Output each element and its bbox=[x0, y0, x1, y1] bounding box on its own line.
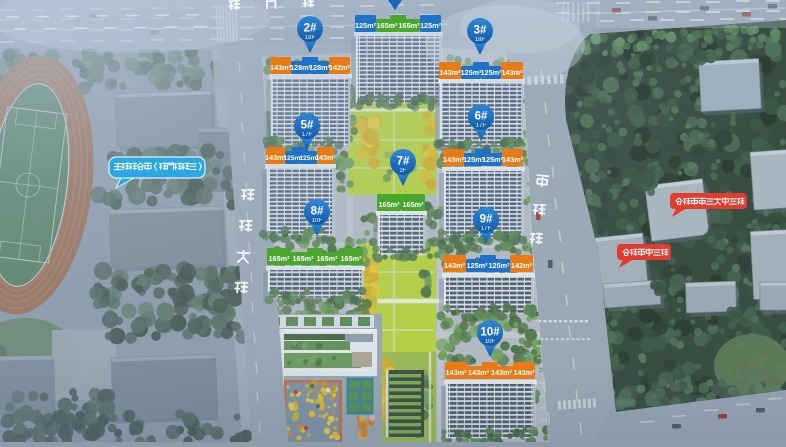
svg-text:143m²: 143m² bbox=[501, 68, 523, 77]
svg-text:128m²: 128m² bbox=[309, 63, 331, 72]
svg-text:10F: 10F bbox=[485, 339, 496, 345]
svg-text:3#: 3# bbox=[474, 25, 487, 37]
svg-text:142m²: 142m² bbox=[329, 63, 351, 72]
svg-text:18F: 18F bbox=[305, 35, 316, 41]
svg-text:6#: 6# bbox=[475, 111, 488, 123]
svg-text:165m²: 165m² bbox=[378, 200, 400, 209]
svg-text:2F: 2F bbox=[399, 168, 406, 174]
svg-text:165m²: 165m² bbox=[292, 254, 314, 263]
svg-text:143m²: 143m² bbox=[468, 368, 490, 377]
svg-text:2#: 2# bbox=[304, 23, 317, 35]
svg-text:143m²: 143m² bbox=[444, 261, 466, 270]
svg-text:143m²: 143m² bbox=[445, 368, 467, 377]
svg-text:7#: 7# bbox=[397, 156, 410, 168]
svg-text:5#: 5# bbox=[301, 120, 314, 132]
svg-text:10F: 10F bbox=[312, 218, 323, 224]
svg-text:125m²: 125m² bbox=[355, 21, 377, 30]
svg-text:125m²: 125m² bbox=[460, 68, 482, 77]
svg-text:143m²: 143m² bbox=[491, 368, 513, 377]
svg-text:143m²: 143m² bbox=[513, 368, 535, 377]
svg-text:143m²: 143m² bbox=[270, 63, 292, 72]
svg-text:143m²: 143m² bbox=[439, 68, 461, 77]
svg-text:165m²: 165m² bbox=[340, 254, 362, 263]
svg-text:125m²: 125m² bbox=[480, 68, 502, 77]
svg-text:9#: 9# bbox=[480, 214, 493, 226]
svg-text:17F: 17F bbox=[476, 123, 487, 129]
svg-text:165m²: 165m² bbox=[402, 200, 424, 209]
svg-text:8#: 8# bbox=[311, 206, 324, 218]
svg-text:17F: 17F bbox=[481, 226, 492, 232]
svg-text:125m²: 125m² bbox=[488, 261, 510, 270]
svg-text:165m²: 165m² bbox=[268, 254, 290, 263]
svg-text:143m²: 143m² bbox=[443, 155, 465, 164]
svg-text:165m²: 165m² bbox=[316, 254, 338, 263]
svg-text:10#: 10# bbox=[480, 327, 500, 339]
svg-text:125m²: 125m² bbox=[466, 261, 488, 270]
svg-text:17F: 17F bbox=[302, 132, 313, 138]
svg-text:142m²: 142m² bbox=[511, 261, 533, 270]
svg-text:18F: 18F bbox=[475, 37, 486, 43]
svg-text:165m²: 165m² bbox=[376, 21, 398, 30]
svg-text:143m²: 143m² bbox=[502, 155, 524, 164]
svg-text:143m²: 143m² bbox=[315, 154, 336, 162]
svg-text:125m²: 125m² bbox=[482, 155, 504, 164]
svg-text:165m²: 165m² bbox=[398, 21, 420, 30]
svg-text:125m²: 125m² bbox=[420, 21, 442, 30]
